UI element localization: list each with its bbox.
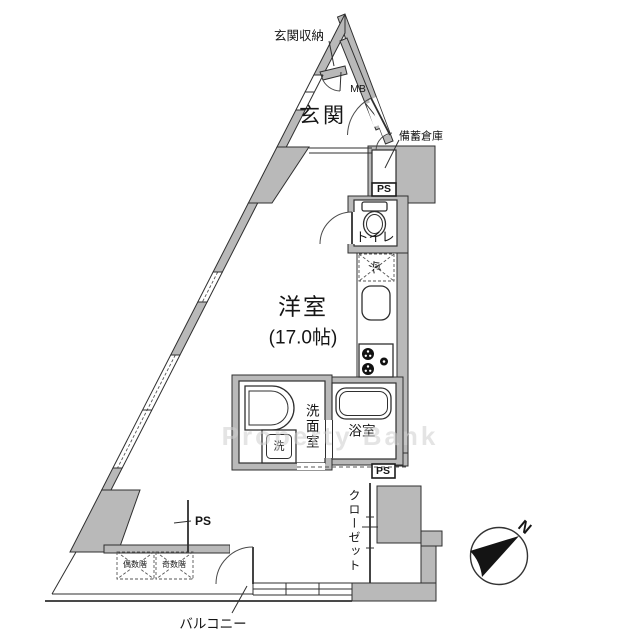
label-emergency-storage: 備蓄倉庫 <box>399 132 443 143</box>
watermark: Property Bank <box>222 423 439 449</box>
label-meter-box: MB <box>350 84 366 95</box>
label-hatch-even: 偶数階 <box>122 561 148 569</box>
label-closet: クローゼット <box>348 489 360 573</box>
floorplan-page: 玄関収納 MB 玄関 備蓄倉庫 PS トイレ 冷 洋室 (17.0帖) 洗面室 … <box>0 0 640 639</box>
kitchen-sink <box>362 286 390 320</box>
label-ps-left: PS <box>195 515 211 527</box>
closet-door <box>362 483 378 583</box>
label-toilet: トイレ <box>355 231 394 244</box>
label-main-room: 洋室 <box>278 296 328 319</box>
label-main-room-size: (17.0帖) <box>269 329 338 348</box>
compass <box>470 528 528 585</box>
compass-needle <box>470 536 519 577</box>
bathtub <box>336 388 391 419</box>
stove <box>359 344 393 377</box>
label-hatch-odd: 奇数階 <box>161 561 187 569</box>
label-ps-right: PS <box>376 466 390 477</box>
label-balcony: バルコニー <box>179 617 246 631</box>
label-entrance: 玄関 <box>299 106 347 127</box>
south-window-band <box>253 583 352 595</box>
label-entrance-storage: 玄関収納 <box>274 30 324 43</box>
label-ps-top: PS <box>377 184 391 195</box>
floorplan-drawing <box>0 0 640 639</box>
balcony-railing <box>45 552 352 601</box>
